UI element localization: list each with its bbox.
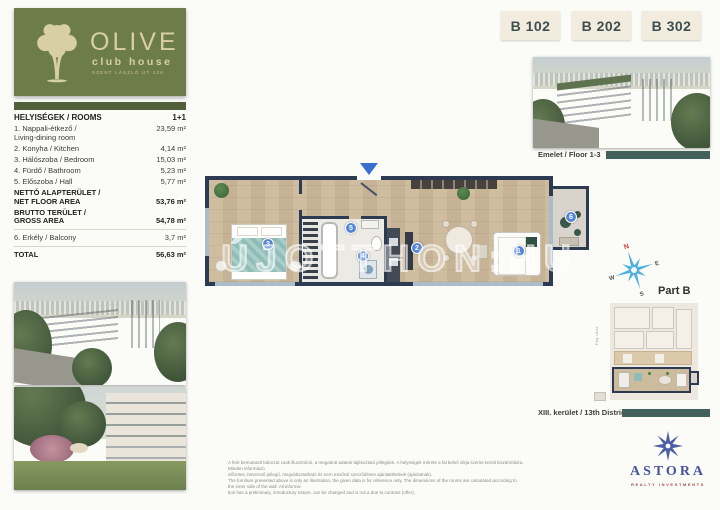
dining-table	[445, 226, 473, 254]
net-area-label: NETTÓ ALAPTERÜLET / NET FLOOR AREA	[14, 189, 100, 206]
plant	[457, 187, 470, 200]
photo-tree	[72, 348, 112, 385]
district-caption: XIII. kerület / 13th District	[538, 408, 628, 417]
compass-east-label: E	[654, 261, 660, 268]
entry-door-swing	[360, 182, 377, 196]
disclaimer-line: The furniture presented above is only an…	[228, 478, 524, 490]
room-label: 3. Hálószoba / Bedroom	[14, 156, 94, 165]
room-label: 5. Előszoba / Hall	[14, 178, 72, 187]
balcony: 6	[553, 186, 589, 250]
key-plan-room	[614, 331, 644, 349]
compass-icon: N E S W	[608, 242, 660, 298]
room-value: 15,03 m²	[156, 156, 186, 165]
unit-tab-b202[interactable]: B 202	[572, 11, 631, 40]
room-value: 5,77 m²	[161, 178, 186, 187]
brand-name: OLIVE	[90, 28, 179, 57]
washing-machine	[359, 260, 377, 279]
coffee-table	[478, 244, 488, 259]
room-value: 4,14 m²	[161, 145, 186, 154]
district-caption-bar	[622, 409, 710, 417]
gross-area-row: BRUTTO TERÜLET / GROSS AREA 54,78 m²	[14, 209, 186, 226]
lounge-chair	[559, 237, 579, 246]
net-area-value: 53,76 m²	[156, 198, 186, 207]
logo-divider-bar	[14, 102, 186, 110]
interior-wall	[299, 216, 349, 219]
interior-wall	[299, 180, 302, 194]
render-photo-courtyard	[14, 387, 186, 490]
floor-caption-bar	[606, 151, 710, 159]
astora-logo: ASTORA REALTY INVESTMENTS	[618, 430, 718, 487]
key-plan-room	[676, 309, 692, 349]
room-value: 23,59 m²	[156, 125, 186, 134]
gross-area-label: BRUTTO TERÜLET / GROSS AREA	[14, 209, 86, 226]
table-divider	[14, 229, 186, 230]
balcony-chair	[574, 229, 581, 236]
photo-building	[42, 304, 118, 350]
wardrobe	[303, 222, 318, 280]
rooms-table-header: HELYISÉGEK / ROOMS 1+1	[14, 114, 186, 123]
rooms-table: HELYISÉGEK / ROOMS 1+1 1. Nappali-étkező…	[14, 114, 186, 262]
room-marker: 2	[411, 242, 423, 254]
key-plan-balcony	[691, 371, 699, 385]
compass-west-label: W	[608, 275, 616, 283]
rooms-header-value: 1+1	[172, 114, 186, 123]
key-plan-highlighted-unit	[612, 367, 691, 393]
toilet	[371, 236, 382, 251]
total-row: TOTAL 56,63 m²	[14, 251, 186, 260]
render-photo-aerial	[533, 57, 710, 148]
balcony-row: 6. Erkély / Balcony 3,7 m²	[14, 234, 186, 243]
window	[205, 208, 209, 256]
dining-chair	[442, 220, 450, 228]
disclaimer-line: tion has a preliminary, introductory nat…	[228, 490, 524, 496]
gross-area-value: 54,78 m²	[156, 217, 186, 226]
street-label: Fáy utca	[594, 326, 599, 345]
brand-subtitle: club house	[92, 56, 172, 68]
total-label: TOTAL	[14, 251, 38, 260]
photo-building	[637, 79, 673, 121]
unit-tab-b302[interactable]: B 302	[642, 11, 701, 40]
room-label: 4. Fürdő / Bathroom	[14, 167, 81, 176]
photo-street	[533, 118, 599, 148]
key-plan-room	[652, 307, 674, 329]
dining-chair	[442, 254, 450, 262]
kitchen-counter	[411, 180, 497, 189]
table-row: 3. Hálószoba / Bedroom 15,03 m²	[14, 156, 186, 165]
photo-flower-bush	[30, 435, 74, 463]
render-photo-street	[14, 282, 186, 385]
key-plan-band	[614, 351, 692, 365]
room-marker: 1	[513, 245, 525, 257]
table-row: 5. Előszoba / Hall 5,77 m²	[14, 178, 186, 187]
room-marker: 6	[565, 211, 577, 223]
olive-tree-icon	[28, 16, 86, 88]
photo-lawn	[14, 461, 186, 490]
sink	[361, 220, 379, 229]
floor-photo-caption: Emelet / Floor 1-3	[538, 150, 601, 159]
part-label: Part B	[658, 285, 690, 297]
rooms-header-label: HELYISÉGEK / ROOMS	[14, 114, 102, 123]
unit-tab-b102[interactable]: B 102	[501, 11, 560, 40]
photo-tree	[671, 93, 710, 148]
total-value: 56,63 m²	[156, 251, 186, 260]
entrance-arrow-icon	[360, 163, 378, 175]
duvet	[232, 238, 286, 272]
table-row: 2. Konyha / Kitchen 4,14 m²	[14, 145, 186, 154]
table-divider	[14, 246, 186, 247]
room-marker: 3	[262, 238, 274, 250]
astora-name: ASTORA	[618, 464, 718, 480]
pillow	[237, 227, 258, 236]
floor-plan: 1 2 3 4 5	[205, 176, 553, 286]
entrance-opening	[357, 176, 381, 180]
nightstand	[289, 260, 301, 272]
table-row: 4. Fürdő / Bathroom 5,23 m²	[14, 167, 186, 176]
room-marker: 4	[357, 250, 369, 262]
key-plan-stub	[594, 392, 606, 401]
room-value: 3,7 m²	[165, 234, 186, 243]
disclaimer: A fent bemutatott bútorzat csak illusztr…	[228, 460, 524, 495]
kitchen-cabinet	[387, 228, 400, 282]
dining-chair	[470, 220, 478, 228]
key-plan	[610, 303, 698, 400]
disclaimer-line: A fent bemutatott bútorzat csak illusztr…	[228, 460, 524, 472]
pillow	[261, 227, 282, 236]
bathtub	[321, 222, 338, 279]
dining-chair	[470, 254, 478, 262]
brand-tagline: SZENT LÁSZLÓ ÚT 106	[92, 70, 164, 75]
astora-star-icon	[651, 430, 685, 462]
room-label: 2. Konyha / Kitchen	[14, 145, 79, 154]
bed	[231, 224, 287, 280]
room-value: 5,23 m²	[161, 167, 186, 176]
brochure-page: OLIVE club house SZENT LÁSZLÓ ÚT 106 HEL…	[0, 0, 720, 510]
astora-subtitle: REALTY INVESTMENTS	[618, 482, 718, 487]
olive-logo-card: OLIVE club house SZENT LÁSZLÓ ÚT 106	[14, 8, 186, 96]
key-plan-room	[646, 331, 674, 349]
window	[413, 282, 543, 286]
photo-parasol	[70, 443, 88, 453]
window	[215, 282, 295, 286]
compass-north-label: N	[623, 243, 630, 251]
room-marker: 5	[345, 222, 357, 234]
key-plan-room	[614, 307, 650, 329]
table-row: 1. Nappali-étkező / Living-dining room 2…	[14, 125, 186, 142]
plant	[214, 183, 229, 198]
nightstand	[215, 260, 227, 272]
room-label: 6. Erkély / Balcony	[14, 234, 76, 243]
room-label: 1. Nappali-étkező / Living-dining room	[14, 125, 77, 142]
compass-south-label: S	[639, 291, 645, 298]
net-area-row: NETTÓ ALAPTERÜLET / NET FLOOR AREA 53,76…	[14, 189, 186, 206]
